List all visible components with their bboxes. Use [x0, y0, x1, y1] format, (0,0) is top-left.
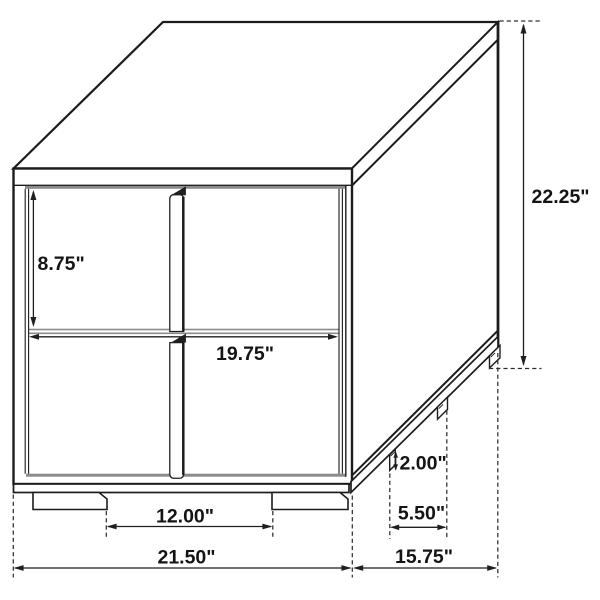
- side-foot-spacing-label: 5.50": [398, 503, 445, 525]
- cabinet-body: [14, 22, 501, 510]
- arrow-right-icon: [487, 565, 497, 571]
- arrow-right-icon: [262, 524, 272, 530]
- bottom-drawer-gap: [26, 474, 346, 477]
- nightstand-dimension-diagram: 8.75" 19.75" 22.25" 2.00" 5.50" 12.00": [0, 0, 600, 600]
- overall-height-label: 22.25": [532, 186, 590, 208]
- arrow-down-icon: [393, 464, 398, 471]
- arrow-left-icon: [14, 565, 24, 571]
- plinth-front: [14, 484, 350, 493]
- front-foot-right: [272, 493, 348, 510]
- arrow-down-icon: [521, 356, 527, 366]
- drawer-width-label: 19.75": [216, 343, 274, 365]
- dimension-foot-height: 2.00": [393, 451, 446, 474]
- foot-height-label: 2.00": [400, 453, 447, 475]
- front-foot-spacing-label: 12.00": [156, 506, 214, 528]
- dimension-diagram-page: 8.75" 19.75" 22.25" 2.00" 5.50" 12.00": [0, 0, 600, 600]
- dimension-overall-height: 22.25": [489, 21, 590, 369]
- front-foot-left: [33, 493, 107, 510]
- arrow-left-icon: [107, 524, 117, 530]
- upper-drawer-height-label: 8.75": [38, 253, 85, 275]
- overall-depth-label: 15.75": [395, 546, 453, 568]
- lower-drawer-pull: [170, 334, 186, 479]
- dimension-front-foot-spacing: 12.00": [106, 506, 272, 539]
- arrow-right-icon: [437, 525, 446, 531]
- arrow-left-icon: [353, 565, 363, 571]
- arrow-left-icon: [390, 525, 399, 531]
- drawer-divider-line-2: [29, 333, 339, 335]
- overall-width-label: 21.50": [157, 547, 215, 569]
- arrow-right-icon: [341, 565, 351, 571]
- arrow-up-icon: [521, 24, 527, 34]
- upper-drawer-pull: [170, 186, 186, 331]
